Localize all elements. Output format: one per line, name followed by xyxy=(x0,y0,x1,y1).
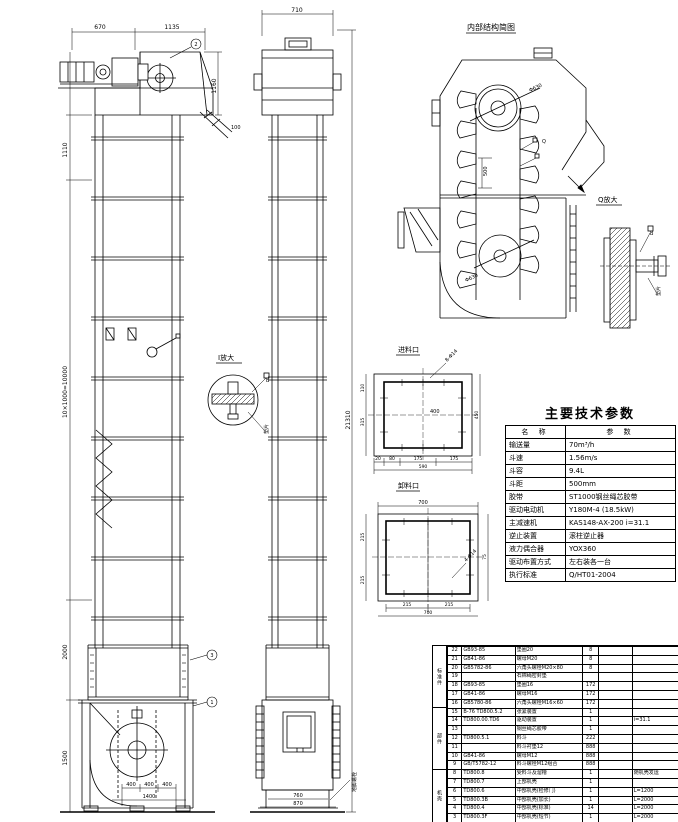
bom-qty: 1 xyxy=(583,708,598,717)
bom-row: 8 TD800.8 受料斗及溜槽 1 随机壳发运 xyxy=(447,770,678,779)
bom-name: 螺母M16 xyxy=(515,690,583,699)
bom-qty: 888 xyxy=(583,752,598,761)
front-view xyxy=(58,52,232,812)
params-header-value: 参 数 xyxy=(566,426,676,439)
bom-group-label: 标准件 xyxy=(433,646,446,708)
dim-inlet-b3: 175 xyxy=(414,456,423,462)
bom-remark xyxy=(632,726,678,735)
bom-code xyxy=(462,673,515,682)
bom-name: 受料斗及溜槽 xyxy=(515,770,583,779)
bom-row: 11 料斗衬垫12 888 xyxy=(447,743,678,752)
bom-name: 钢丝绳芯胶带 xyxy=(515,726,583,735)
bom-material xyxy=(598,787,632,796)
bom-material xyxy=(598,655,632,664)
bom-name: 料斗螺栓M12组合 xyxy=(515,761,583,770)
param-value: 70m³/h xyxy=(566,439,676,452)
dim-side-bottom-2: 870 xyxy=(293,801,303,807)
dim-outlet-total: 700 xyxy=(424,610,433,616)
bom-no: 8 xyxy=(447,770,461,779)
param-name: 逆止装置 xyxy=(506,530,566,543)
bom-code: TD800.00.TD6 xyxy=(462,717,515,726)
detail-q-note: 垫片 xyxy=(655,286,662,296)
param-row: 输送量 70m³/h xyxy=(506,439,676,452)
bom-remark xyxy=(632,699,678,708)
bom-code: GB93-85 xyxy=(462,682,515,691)
dim-front-head-small: 100 xyxy=(231,125,241,131)
bom-qty: 888 xyxy=(583,743,598,752)
bom-material xyxy=(598,743,632,752)
bom-qty: 8 xyxy=(583,664,598,673)
param-name: 斗距 xyxy=(506,478,566,491)
bom-no: 7 xyxy=(447,778,461,787)
bom-row: 21 GB41-86 螺母M20 8 xyxy=(447,655,678,664)
param-value: Q/HT01-2004 xyxy=(566,569,676,582)
dim-front-left-4: 1500 xyxy=(62,750,69,765)
bom-code: GB93-85 xyxy=(462,647,515,656)
bom-no: 18 xyxy=(447,682,461,691)
param-row: 斗容 9.4L xyxy=(506,465,676,478)
bom-row: 13 钢丝绳芯胶带 1 xyxy=(447,726,678,735)
bom-material xyxy=(598,682,632,691)
dim-bucket-pitch: 500 xyxy=(483,166,489,176)
bom-code: TD800.3F xyxy=(462,814,515,822)
dim-inlet-left-a: 110 xyxy=(360,384,366,393)
dim-inlet-b4: 175 xyxy=(450,456,459,462)
bom-name: 上部机壳 xyxy=(515,778,583,787)
bom-qty: 1 xyxy=(583,787,598,796)
bom-material xyxy=(598,673,632,682)
param-value: 9.4L xyxy=(566,465,676,478)
bom-no: 3 xyxy=(447,814,461,822)
bom-code: TD800.4 xyxy=(462,805,515,814)
bom-row: 9 GB/T5782-12 料斗螺栓M12组合 888 xyxy=(447,761,678,770)
callout-3: 3 xyxy=(210,653,213,659)
param-value: 500mm xyxy=(566,478,676,491)
inlet-flange-view xyxy=(366,355,480,474)
param-value: KAS148-AX-200 i=31.1 xyxy=(566,517,676,530)
bom-row: 12 TD800.5.1 料斗 222 xyxy=(447,734,678,743)
bom-no: 5 xyxy=(447,796,461,805)
bom-code: TD800.3B xyxy=(462,796,515,805)
bom-qty: 14 xyxy=(583,805,598,814)
bom-name: 石棉绳密封垫 xyxy=(515,673,583,682)
param-name: 驱动电动机 xyxy=(506,504,566,517)
bom-no: 10 xyxy=(447,752,461,761)
tech-params-table: 名 称 参 数 输送量 70m³/h 斗速 1.56m/s 斗容 9.4L xyxy=(505,425,676,582)
bom-material xyxy=(598,796,632,805)
bom-no: 12 xyxy=(447,734,461,743)
param-row: 主减速机 KAS148-AX-200 i=31.1 xyxy=(506,517,676,530)
param-row: 液力偶合器 YOX360 xyxy=(506,543,676,556)
bom-row: 7 TD800.7 上部机壳 1 xyxy=(447,778,678,787)
bom-qty: 1 xyxy=(583,814,598,822)
bom-name: 螺母M20 xyxy=(515,655,583,664)
bom-name: 中部机壳(短节) xyxy=(515,814,583,822)
param-row: 驱动布置方式 左右装各一台 xyxy=(506,556,676,569)
bom-no: 4 xyxy=(447,805,461,814)
bom-row: 15 B-76 TD800.5.2 张紧装置 1 xyxy=(447,708,678,717)
bom-row: 16 GB5780-86 六角头螺栓M16×60 172 xyxy=(447,699,678,708)
bom-name: 驱动装置 xyxy=(515,717,583,726)
bom-material xyxy=(598,664,632,673)
outlet-view-label: 卸料口 xyxy=(398,481,419,490)
bom-row: 22 GB93-85 垫圈20 8 xyxy=(447,647,678,656)
bom-name: 张紧装置 xyxy=(515,708,583,717)
detail-i-note: 垫片 xyxy=(263,424,270,434)
param-row: 斗距 500mm xyxy=(506,478,676,491)
bom-name: 中部机壳(检修门) xyxy=(515,787,583,796)
bom-group-label: 机壳 xyxy=(433,770,446,822)
bom-row: 19 石棉绳密封垫 xyxy=(447,673,678,682)
param-value: ST1000钢丝绳芯胶带 xyxy=(566,491,676,504)
bom-code: GB/T5782-12 xyxy=(462,761,515,770)
bom-remark: L=2000 xyxy=(632,814,678,822)
bom-material xyxy=(598,699,632,708)
bom-remark xyxy=(632,673,678,682)
bom-qty: 1 xyxy=(583,770,598,779)
dim-outlet-top: 700 xyxy=(418,500,428,506)
param-name: 主减速机 xyxy=(506,517,566,530)
param-row: 胶带 ST1000钢丝绳芯胶带 xyxy=(506,491,676,504)
dim-front-head-right: 1160 xyxy=(211,78,218,93)
front-view-dimensions xyxy=(66,28,222,812)
bom-material xyxy=(598,647,632,656)
dim-inlet-right: 450 xyxy=(474,411,480,420)
bom-name: 中部机壳(标准) xyxy=(515,805,583,814)
bom-code: B-76 TD800.5.2 xyxy=(462,708,515,717)
bom-qty: 172 xyxy=(583,699,598,708)
bom-no: 17 xyxy=(447,690,461,699)
bom-qty: 8 xyxy=(583,647,598,656)
bom-remark xyxy=(632,734,678,743)
dim-front-top-left: 670 xyxy=(94,24,106,31)
drawing-sheet: 670 1135 1160 100 1110 10×1000=10000 200… xyxy=(0,0,678,822)
param-value: YOX360 xyxy=(566,543,676,556)
bom-material xyxy=(598,805,632,814)
bom-remark xyxy=(632,682,678,691)
dim-head-pulley-dia: Φ630 xyxy=(528,83,543,94)
bom-remark: 随机壳发运 xyxy=(632,770,678,779)
bom-row: 18 GB93-85 垫圈16 172 xyxy=(447,682,678,691)
bom-qty: 172 xyxy=(583,682,598,691)
param-name: 斗速 xyxy=(506,452,566,465)
bom-code: GB5780-86 xyxy=(462,699,515,708)
param-row: 执行标准 Q/HT01-2004 xyxy=(506,569,676,582)
dim-outlet-right: 75 xyxy=(482,554,488,560)
bom-row: 10 GB41-86 螺母M12 888 xyxy=(447,752,678,761)
bom-remark xyxy=(632,761,678,770)
bom-qty: 1 xyxy=(583,778,598,787)
bom-remark: i=31.1 xyxy=(632,717,678,726)
bom-remark: L=1200 xyxy=(632,787,678,796)
param-value: 左右装各一台 xyxy=(566,556,676,569)
param-value: 滚柱逆止器 xyxy=(566,530,676,543)
dim-inlet-center: 400 xyxy=(430,409,440,415)
dim-inlet-b1: 20 xyxy=(375,456,381,462)
bom-no: 20 xyxy=(447,664,461,673)
bom-remark xyxy=(632,752,678,761)
detail-q-view xyxy=(596,205,672,328)
bom-row: 3 TD800.3F 中部机壳(短节) 1 L=2000 xyxy=(447,814,678,822)
bom-code xyxy=(462,743,515,752)
bom-no: 19 xyxy=(447,673,461,682)
detail-q-callout: B xyxy=(650,231,654,237)
param-name: 输送量 xyxy=(506,439,566,452)
bom-code: TD800.5.1 xyxy=(462,734,515,743)
bom-name: 料斗 xyxy=(515,734,583,743)
bom-no: 9 xyxy=(447,761,461,770)
schematic-title: 内部结构简图 xyxy=(467,22,515,32)
bom-name: 螺母M12 xyxy=(515,752,583,761)
bom-material xyxy=(598,734,632,743)
bom-code: TD800.7 xyxy=(462,778,515,787)
dim-outlet-bottom-b: 215 xyxy=(445,602,454,608)
bom-material xyxy=(598,708,632,717)
bom-material xyxy=(598,717,632,726)
bom-row: 17 GB41-86 螺母M16 172 xyxy=(447,690,678,699)
bom-no: 21 xyxy=(447,655,461,664)
bom-row: 20 GB5782-86 六角头螺栓M20×80 8 xyxy=(447,664,678,673)
dim-inlet-b2: 80 xyxy=(389,456,395,462)
detail-i-label: I放大 xyxy=(218,353,234,362)
bom-remark: L=2000 xyxy=(632,796,678,805)
dim-boot-pulley-dia: Φ630 xyxy=(464,273,479,284)
bom-code: GB41-86 xyxy=(462,752,515,761)
dim-front-left-2: 10×1000=10000 xyxy=(62,366,69,418)
bom-row: 14 TD800.00.TD6 驱动装置 1 i=31.1 xyxy=(447,717,678,726)
param-name: 执行标准 xyxy=(506,569,566,582)
callout-2: 2 xyxy=(194,42,197,48)
dim-front-left-3: 2000 xyxy=(62,644,69,659)
inlet-bolt-leader: 8-Φ14 xyxy=(444,348,459,363)
dim-side-total-height: 21310 xyxy=(345,410,352,429)
dim-outlet-bottom-a: 215 xyxy=(403,602,412,608)
bom-no: 14 xyxy=(447,717,461,726)
bom-remark xyxy=(632,690,678,699)
param-name: 液力偶合器 xyxy=(506,543,566,556)
bom-qty xyxy=(583,673,598,682)
bom-qty: 1 xyxy=(583,717,598,726)
bom-no: 15 xyxy=(447,708,461,717)
bom-qty: 222 xyxy=(583,734,598,743)
param-value: 1.56m/s xyxy=(566,452,676,465)
detail-i-callout: B xyxy=(266,378,270,384)
anchor-bolt-note: 地脚螺栓 xyxy=(351,772,358,792)
bom-row: 5 TD800.3B 中部机壳(加长) 1 L=2000 xyxy=(447,796,678,805)
bom-name: 六角头螺栓M20×80 xyxy=(515,664,583,673)
bom-code: GB41-86 xyxy=(462,655,515,664)
bom-row: 6 TD800.6 中部机壳(检修门) 1 L=1200 xyxy=(447,787,678,796)
bom-no: 13 xyxy=(447,726,461,735)
bom-remark xyxy=(632,708,678,717)
dim-side-top: 710 xyxy=(291,7,303,14)
bom-qty: 8 xyxy=(583,655,598,664)
bom-no: 16 xyxy=(447,699,461,708)
param-row: 斗速 1.56m/s xyxy=(506,452,676,465)
dim-inlet-left-b: 315 xyxy=(360,418,366,427)
tech-params-title: 主要技术参数 xyxy=(505,403,675,422)
bill-of-materials: 标准件 部件 机壳 22 GB93-85 垫圈20 8 21 GB41-86 xyxy=(432,645,678,822)
dim-outlet-left-a: 215 xyxy=(360,533,366,542)
bom-material xyxy=(598,690,632,699)
param-value: Y180M-4 (18.5kW) xyxy=(566,504,676,517)
bom-material xyxy=(598,726,632,735)
param-row: 驱动电动机 Y180M-4 (18.5kW) xyxy=(506,504,676,517)
bom-material xyxy=(598,761,632,770)
bom-remark: L=2000 xyxy=(632,805,678,814)
dim-front-bottom-2: 400 xyxy=(144,782,154,788)
detail-q-label: Q放大 xyxy=(598,195,618,204)
param-name: 斗容 xyxy=(506,465,566,478)
dim-side-bottom-1: 760 xyxy=(293,793,303,799)
bom-material xyxy=(598,778,632,787)
dim-front-left-1: 1110 xyxy=(62,142,69,157)
bom-material xyxy=(598,814,632,822)
bom-no: 11 xyxy=(447,743,461,752)
bom-name: 料斗衬垫12 xyxy=(515,743,583,752)
dim-front-bottom-total: 1400 xyxy=(143,794,156,800)
bom-code xyxy=(462,726,515,735)
schematic-callout-q: Q xyxy=(542,139,546,145)
bom-qty: 1 xyxy=(583,796,598,805)
dim-inlet-total: 590 xyxy=(419,464,428,470)
bom-code: TD800.6 xyxy=(462,787,515,796)
dim-front-bottom-3: 400 xyxy=(162,782,172,788)
dim-front-top-right: 1135 xyxy=(164,24,179,31)
bom-code: GB5782-86 xyxy=(462,664,515,673)
bom-material xyxy=(598,752,632,761)
param-name: 驱动布置方式 xyxy=(506,556,566,569)
bom-remark xyxy=(632,664,678,673)
dim-front-bottom-1: 400 xyxy=(126,782,136,788)
bom-table: 22 GB93-85 垫圈20 8 21 GB41-86 螺母M20 8 xyxy=(447,646,678,822)
inlet-view-label: 进料口 xyxy=(398,345,419,354)
bom-name: 中部机壳(加长) xyxy=(515,796,583,805)
bom-name: 垫圈16 xyxy=(515,682,583,691)
bom-code: GB41-86 xyxy=(462,690,515,699)
callout-1: 1 xyxy=(210,700,213,706)
tech-params-panel: 主要技术参数 名 称 参 数 输送量 70m³/h 斗速 1.56m/s 斗容 xyxy=(505,403,675,582)
bom-no: 22 xyxy=(447,647,461,656)
bom-qty: 1 xyxy=(583,726,598,735)
side-view-dimensions xyxy=(260,10,356,812)
detail-i-view xyxy=(208,363,269,430)
bom-remark xyxy=(632,778,678,787)
bom-group-label: 部件 xyxy=(433,708,446,770)
bom-remark xyxy=(632,743,678,752)
dim-outlet-left-b: 215 xyxy=(360,576,366,585)
bom-remark xyxy=(632,655,678,664)
bom-name: 垫圈20 xyxy=(515,647,583,656)
bom-material xyxy=(598,770,632,779)
param-row: 逆止装置 滚柱逆止器 xyxy=(506,530,676,543)
bom-qty: 172 xyxy=(583,690,598,699)
bom-name: 六角头螺栓M16×60 xyxy=(515,699,583,708)
bom-row: 4 TD800.4 中部机壳(标准) 14 L=2000 xyxy=(447,805,678,814)
bom-no: 6 xyxy=(447,787,461,796)
bom-remark xyxy=(632,647,678,656)
params-header-name: 名 称 xyxy=(506,426,566,439)
bom-group-column: 标准件 部件 机壳 xyxy=(433,646,447,822)
front-callouts xyxy=(170,39,217,707)
param-name: 胶带 xyxy=(506,491,566,504)
bom-code: TD800.8 xyxy=(462,770,515,779)
bom-qty: 888 xyxy=(583,761,598,770)
internal-schematic xyxy=(398,33,604,318)
